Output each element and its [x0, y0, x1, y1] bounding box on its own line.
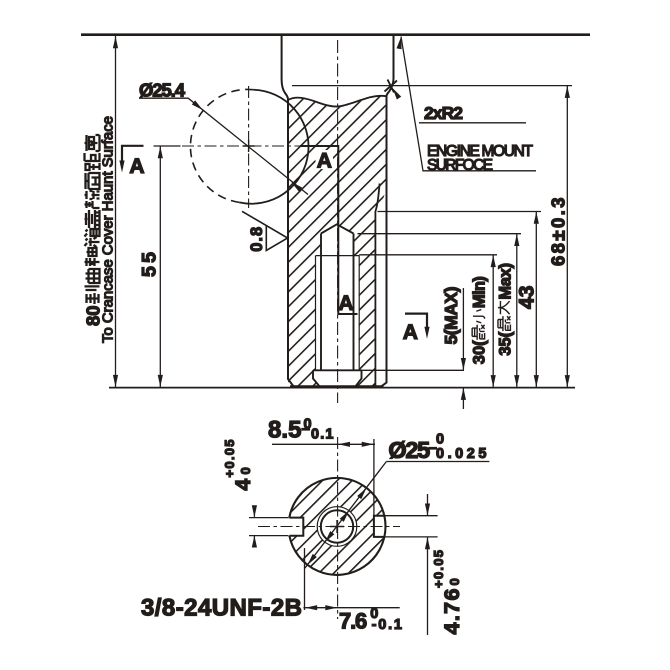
svg-text:8.5: 8.5 [268, 416, 302, 443]
svg-text:7.6: 7.6 [339, 608, 367, 633]
svg-text:A: A [129, 155, 144, 178]
svg-text:0.8: 0.8 [248, 227, 266, 252]
svg-text:68±0.3: 68±0.3 [547, 198, 568, 267]
svg-text:A: A [338, 292, 353, 315]
svg-text:55: 55 [139, 252, 161, 277]
svg-text:Ø25.4: Ø25.4 [139, 80, 186, 101]
svg-text:To Crancase Cover Haunt Surfac: To Crancase Cover Haunt Surface [100, 116, 117, 343]
svg-text:43: 43 [515, 286, 538, 310]
svg-text:A: A [403, 321, 418, 344]
svg-text:4: 4 [232, 479, 255, 491]
svg-text:30(: 30( [471, 340, 489, 364]
svg-text:+0.05: +0.05 [222, 440, 237, 478]
svg-text:Max): Max) [496, 263, 514, 300]
svg-text:+0.05: +0.05 [431, 550, 446, 588]
svg-text:0: 0 [238, 467, 253, 474]
svg-text:0.025: 0.025 [436, 446, 486, 462]
svg-text:A: A [317, 150, 332, 173]
svg-text:35(: 35( [496, 331, 514, 355]
svg-text:-0.1: -0.1 [372, 617, 402, 633]
svg-text:0: 0 [447, 578, 462, 585]
svg-text:Min): Min) [471, 276, 489, 308]
svg-text:3/8-24UNF-2B: 3/8-24UNF-2B [141, 595, 302, 622]
svg-text:4.76: 4.76 [440, 588, 464, 634]
svg-text:2xR2: 2xR2 [424, 103, 463, 123]
svg-text:0.1: 0.1 [311, 426, 334, 442]
svg-text:Ø25: Ø25 [388, 437, 430, 463]
svg-text:0: 0 [436, 432, 444, 448]
svg-text:5(MAX): 5(MAX) [441, 287, 461, 345]
svg-text:SURFOCE: SURFOCE [427, 157, 493, 174]
